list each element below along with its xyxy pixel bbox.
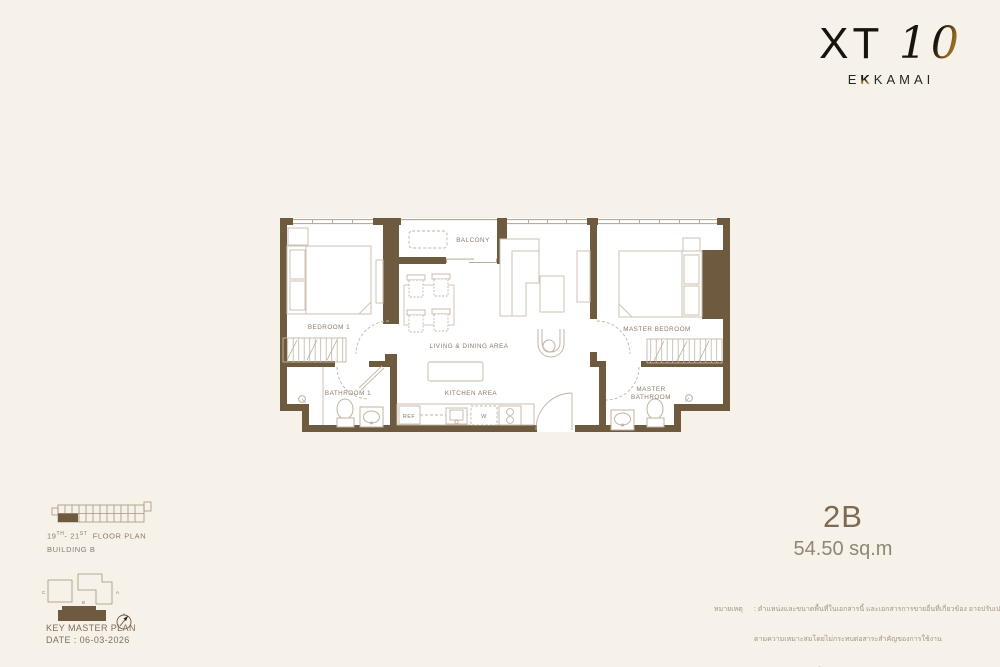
- logo-stylized-k-icon: K: [860, 72, 873, 87]
- building-floor-strip: [48, 499, 158, 529]
- floor-range-label: 19TH- 21ST FLOOR PLAN: [47, 531, 146, 541]
- key-master-plan: C A B: [38, 568, 153, 630]
- brochure-page: XT 10 EKKAMAI: [0, 0, 1000, 667]
- key-master-plan-date: DATE : 06-03-2026: [46, 635, 130, 645]
- building-b-label: B: [82, 600, 85, 605]
- sliding-door: [446, 259, 474, 260]
- bedroom1-wardrobe: [283, 338, 346, 362]
- master-wardrobe: [647, 339, 722, 363]
- floor-plan: BALCONY BEDROOM 1 MASTER BEDROOM LIVING …: [275, 213, 737, 439]
- toilet: [647, 399, 663, 419]
- label-bedroom1: BEDROOM 1: [308, 324, 350, 331]
- pillow: [290, 281, 305, 310]
- logo-kamai: KAMAI: [874, 72, 934, 87]
- label-kitchen: KITCHEN AREA: [445, 390, 497, 397]
- building-label: BUILDING B: [47, 545, 96, 554]
- unit-area: 54.50 sq.m: [778, 538, 908, 561]
- tv-console: [376, 260, 383, 303]
- logo-e: E: [848, 72, 861, 87]
- logo-xt: XT: [819, 19, 899, 68]
- kitchen-island: [428, 362, 483, 381]
- pillow: [684, 255, 699, 284]
- unit-type: 2B: [778, 500, 908, 534]
- label-master-bedroom: MASTER BEDROOM: [623, 326, 691, 333]
- nightstand: [288, 228, 308, 245]
- logo-subtitle: EKKAMAI: [808, 72, 974, 87]
- label-washer: W: [481, 414, 487, 420]
- toilet: [337, 399, 353, 419]
- pillow: [684, 286, 699, 315]
- label-bathroom1: BATHROOM 1: [325, 390, 371, 397]
- label-living-dining: LIVING & DINING AREA: [430, 343, 509, 350]
- building-b-highlight: [58, 606, 106, 621]
- logo-wordmark: XT 10: [808, 18, 974, 70]
- label-master-bathroom-2: BATHROOM: [631, 394, 671, 401]
- highlighted-unit: [58, 514, 78, 523]
- label-ref: REF: [403, 414, 416, 420]
- coffee-table: [540, 276, 564, 312]
- remark-block: หมายเหตุ: ตำแหน่งและขนาดพื้นที่ในเอกสารน…: [702, 584, 994, 667]
- balcony-railing: [401, 219, 497, 220]
- remark-thai-line2: ตามความเหมาะสมโดยไม่กระทบต่อสาระสำคัญของ…: [702, 635, 994, 645]
- key-master-plan-title: KEY MASTER PLAN: [46, 623, 136, 633]
- building-c-label: C: [42, 590, 46, 595]
- label-master-bathroom-1: MASTER: [636, 386, 665, 393]
- unit-info: 2B 54.50 sq.m: [778, 500, 908, 561]
- building-a-label: A: [116, 590, 119, 595]
- building-c-outline: [48, 580, 72, 602]
- pillow: [290, 250, 305, 279]
- logo-ten: 10: [899, 18, 963, 69]
- label-balcony: BALCONY: [456, 237, 490, 244]
- tv-cabinet: [577, 251, 590, 302]
- remark-thai-line1: หมายเหตุ: ตำแหน่งและขนาดพื้นที่ในเอกสารน…: [702, 605, 994, 615]
- project-logo: XT 10 EKKAMAI: [808, 18, 974, 87]
